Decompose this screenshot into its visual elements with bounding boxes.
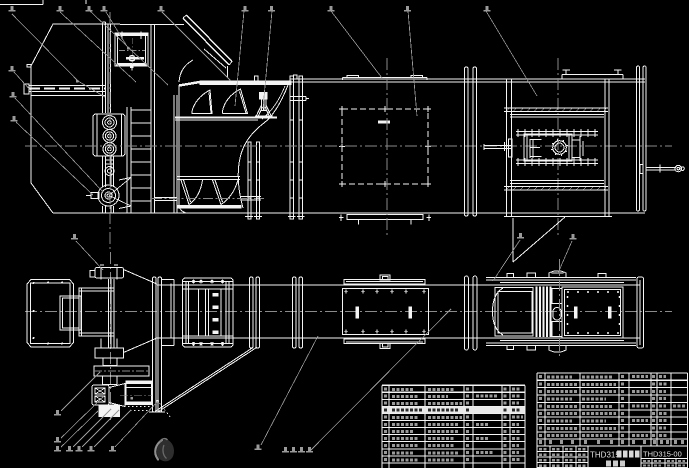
svg-text:THD315: THD315	[590, 451, 620, 460]
svg-text:THD315-00: THD315-00	[643, 450, 682, 459]
